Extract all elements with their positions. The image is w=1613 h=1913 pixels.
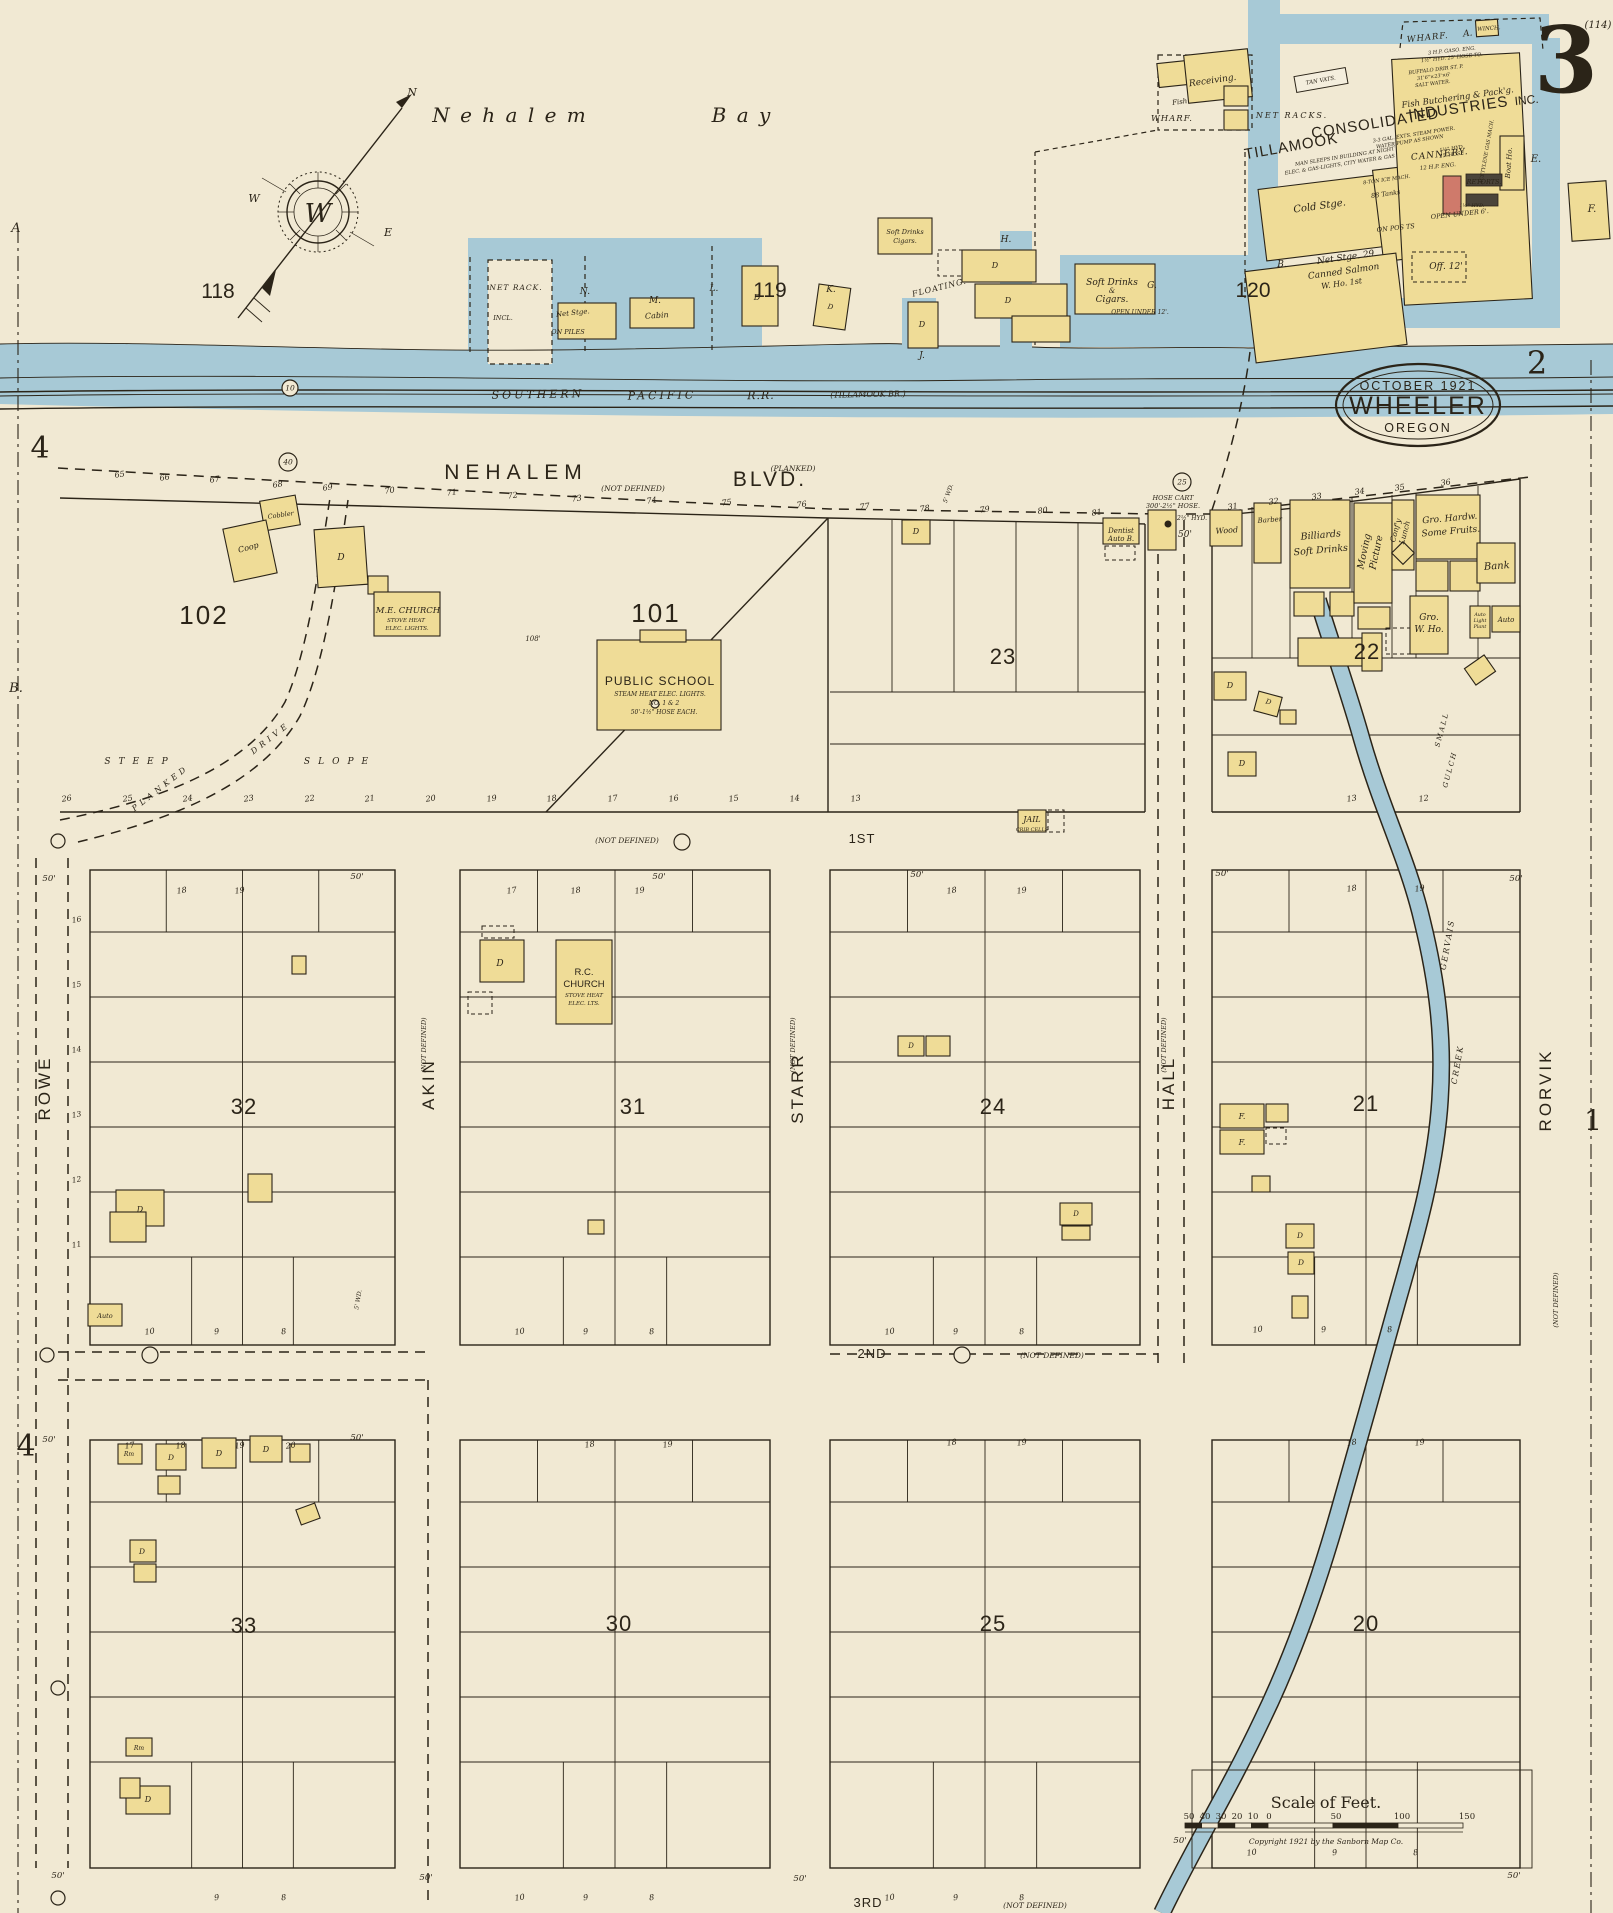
map-label: (PLANKED) (771, 464, 816, 473)
map-label: 20 (284, 1440, 296, 1450)
map-label: 31 (620, 1094, 646, 1119)
building (368, 576, 388, 594)
map-label: CRIB CELLS (1016, 827, 1049, 833)
map-label: 40 (1200, 1812, 1211, 1822)
map-label: W (248, 192, 261, 205)
map-label: 50' (1173, 1836, 1186, 1846)
map-label: OPEN UNDER 12'. (1111, 309, 1169, 316)
map-label: PACIFIC (627, 388, 697, 402)
map-label: R.C. (575, 967, 594, 978)
building (1266, 1104, 1288, 1122)
hose-circle-icon (51, 1681, 65, 1695)
map-label: SOUTHERN (491, 387, 584, 402)
map-label: (NOT DEFINED) (789, 1017, 797, 1073)
building (120, 1778, 140, 1798)
map-label: 76 (796, 499, 807, 509)
map-label: Auto B. (1107, 535, 1134, 543)
map-label: 12 (71, 1174, 82, 1185)
map-label: 10 (884, 1892, 895, 1902)
building (1292, 1296, 1308, 1318)
map-label: 22 (1354, 639, 1380, 664)
building (1252, 1176, 1270, 1192)
map-label: PUBLIC SCHOOL (605, 674, 715, 688)
building (878, 218, 932, 254)
building (1148, 510, 1176, 550)
map-label: 16 (71, 914, 82, 925)
building (1062, 1226, 1090, 1240)
map-label: 18 (175, 1440, 186, 1450)
map-label: 23 (990, 644, 1016, 669)
map-label: D (991, 261, 999, 270)
building (1443, 176, 1461, 214)
map-label: 80 (1037, 505, 1048, 515)
map-label: D (1072, 1210, 1079, 1218)
hose-circle-icon (51, 834, 65, 848)
map-label: 21 (1353, 1091, 1379, 1116)
building (975, 284, 1067, 318)
map-label: H. (1000, 235, 1012, 245)
hose-circle-number: 40 (282, 458, 293, 467)
map-label: 18 (946, 885, 957, 895)
map-label: F. (1238, 1138, 1246, 1147)
map-label: STOVE HEAT (387, 618, 425, 624)
building (1330, 592, 1354, 616)
map-label: STEEP (104, 757, 175, 767)
building (962, 250, 1036, 282)
map-label: 20 (1353, 1611, 1379, 1636)
map-label: 20 (424, 793, 436, 803)
stamp-date: OCTOBER 1921 (1360, 379, 1477, 393)
map-label: 50' (350, 872, 363, 882)
map-label: 120 (1235, 279, 1270, 302)
map-label: 13 (850, 793, 861, 803)
map-label: 15 (728, 793, 739, 803)
hose-circle-icon (142, 1347, 158, 1363)
map-label: 19 (234, 885, 245, 895)
map-label: 65 (114, 469, 125, 479)
map-label: 35 (1394, 482, 1405, 492)
net-rack-wharf (488, 260, 552, 364)
map-label: Bank (1483, 560, 1511, 573)
hose-circle-number: 10 (285, 384, 295, 393)
map-label: SLOPE (304, 757, 376, 767)
map-label: D (912, 527, 920, 536)
map-label: STEAM HEAT ELEC. LIGHTS. (614, 691, 706, 698)
map-label: 10 (514, 1326, 525, 1336)
map-label: F. (1587, 204, 1597, 215)
map-label: Off. 12' (1429, 262, 1462, 272)
map-label: 50' (51, 1871, 64, 1881)
map-label: M.E. CHURCH (375, 606, 441, 616)
map-label: 10 (884, 1326, 895, 1336)
map-label: 18 (570, 885, 581, 895)
map-label: 1 (1584, 1104, 1602, 1137)
map-label: A (10, 221, 20, 236)
map-label: D (262, 1445, 270, 1454)
map-label: 50' (793, 1874, 806, 1884)
map-label: 18 (946, 1437, 957, 1447)
map-label: (NOT DEFINED) (1003, 1901, 1067, 1910)
map-label: (NOT DEFINED) (595, 836, 659, 845)
map-label: WHARF. (1151, 114, 1193, 124)
map-label: 18 (1346, 1437, 1357, 1447)
map-label: W. Ho. (1414, 625, 1444, 635)
map-label: D (495, 959, 503, 969)
map-label: 50' (419, 1873, 432, 1883)
map-label: 23 (242, 793, 254, 803)
map-label: 50' (42, 874, 55, 884)
map-label: 70 (384, 485, 395, 495)
map-label: Auto (1497, 616, 1515, 624)
map-label: 25 (980, 1611, 1006, 1636)
map-label: 50' (1507, 1871, 1520, 1881)
map-label: Cigars. (893, 237, 917, 245)
map-label: Cigars. (1096, 295, 1129, 305)
map-label: 75 (721, 497, 732, 507)
building (248, 1174, 272, 1202)
map-label: 13 (71, 1109, 82, 1120)
map-label: D (907, 1042, 914, 1050)
map-label: 13 (1346, 793, 1357, 803)
map-label: Dentist (1107, 527, 1134, 535)
map-label: L. (709, 284, 719, 294)
map-label: 3RD (853, 1895, 882, 1910)
hose-circle-icon (40, 1348, 54, 1362)
map-label: 10 (1248, 1812, 1259, 1822)
map-label: B. (8, 681, 23, 696)
map-label: N. (579, 287, 590, 297)
map-label: G. (1147, 281, 1157, 291)
map-label: D (1297, 1258, 1304, 1267)
map-label: 10 (144, 1326, 155, 1336)
map-label: 33 (1311, 491, 1322, 501)
building (110, 1212, 146, 1242)
map-label: 19 (1016, 1437, 1027, 1447)
map-label: 12 (1418, 793, 1429, 803)
map-label: 15 (71, 979, 82, 990)
map-label: 73 (571, 493, 582, 503)
map-label: 72 (507, 490, 518, 500)
map-label: 1ST (849, 831, 876, 846)
map-label: ELEC. LIGHTS. (384, 626, 428, 632)
map-label: 11 (71, 1239, 82, 1250)
map-label: 50' (42, 1435, 55, 1445)
map-label: STOVE HEAT (565, 993, 603, 999)
map-label: D (167, 1453, 174, 1462)
sanborn-map-sheet: 104025N e h a l e mB a yNWEW118119120NET… (0, 0, 1613, 1913)
building (1224, 86, 1248, 106)
map-label: Rm (123, 1451, 135, 1458)
map-label: J. (917, 351, 925, 361)
map-label: 10 (1252, 1324, 1263, 1334)
map-label: 21 (363, 793, 375, 803)
map-label: 101 (631, 598, 680, 628)
map-label: 66 (159, 472, 170, 482)
map-label: D (1296, 1231, 1303, 1240)
map-label: 79 (979, 504, 990, 514)
map-label: (NOT DEFINED) (1160, 1017, 1168, 1073)
building (1298, 638, 1362, 666)
map-label: 50'-1½" HOSE EACH. (631, 709, 698, 716)
sheet-annotation: (114) (1585, 20, 1612, 31)
map-label: D (753, 293, 761, 302)
map-label: 19 (1414, 1437, 1425, 1447)
map-label: E. (1530, 154, 1541, 165)
map-label: B a y (711, 103, 773, 127)
map-label: 0 (1266, 1812, 1271, 1822)
map-label: A. (1462, 29, 1473, 40)
map-label: 108' (525, 635, 540, 643)
map-label: 19 (662, 1439, 673, 1449)
map-label: Light (1473, 618, 1487, 624)
map-label: 2½" HYD. (1176, 515, 1207, 522)
map-label: & (1109, 287, 1115, 295)
map-label: Soft Drinks (886, 228, 924, 236)
map-label: 20 (1232, 1812, 1243, 1822)
map-label: E (383, 226, 392, 239)
stamp-city: WHEELER (1349, 392, 1487, 420)
building (1358, 607, 1390, 629)
map-label: 36 (1440, 477, 1451, 487)
map-label: RORVIK (1536, 1049, 1555, 1132)
map-label: NO. 1 & 2 (648, 700, 680, 707)
map-label: NET RACKS. (1255, 111, 1328, 120)
map-label: K. (825, 285, 836, 295)
map-label: 30 (606, 1611, 632, 1636)
map-label: D (215, 1449, 223, 1458)
map-label: 30 (1216, 1812, 1227, 1822)
map-label: 16 (668, 793, 679, 803)
map-label: 18 (176, 885, 187, 895)
map-label: 68 (272, 479, 283, 489)
map-label: 50' (910, 870, 923, 880)
map-label: D (138, 1547, 145, 1556)
map-label: 78 (919, 503, 930, 513)
map-label: 50' (1509, 874, 1522, 884)
map-label: 14 (71, 1044, 82, 1055)
map-label: 34 (1354, 486, 1365, 496)
map-label: 31 (1227, 501, 1238, 511)
map-label: F. (1238, 1112, 1246, 1121)
map-label: CHURCH (563, 979, 604, 990)
map-label: 50 (1184, 1812, 1195, 1822)
map-label: 150 (1459, 1812, 1475, 1822)
map-label: Wood (1215, 525, 1238, 536)
map-label: 74 (646, 495, 657, 505)
map-label: W (305, 199, 334, 229)
map-label: Auto (96, 1312, 112, 1320)
map-label: 50' (1178, 530, 1192, 540)
map-label: NEHALEM (444, 461, 588, 484)
hose-circle-icon (954, 1347, 970, 1363)
map-label: HOSE CART (1151, 494, 1194, 502)
map-label: 118 (201, 280, 234, 303)
map-label: Rm (133, 1745, 145, 1752)
map-label: D (918, 320, 926, 329)
building (1258, 175, 1384, 261)
map-label: 300'-2½" HOSE. (1146, 502, 1200, 510)
map-label: ROWE (35, 1056, 54, 1121)
map-label: D (136, 1205, 144, 1214)
map-label: D (1238, 759, 1246, 768)
map-label: 19 (1016, 885, 1027, 895)
building (588, 1220, 604, 1234)
map-label: 50' (350, 1433, 363, 1443)
map-label: R.R. (746, 389, 775, 402)
map-label: INCL. (492, 314, 513, 322)
building (134, 1564, 156, 1582)
map-label: 71 (446, 487, 457, 497)
map-label: D (336, 553, 344, 563)
building (1254, 503, 1281, 563)
map-label: 69 (322, 482, 333, 492)
map-label: 50 (1331, 1812, 1342, 1822)
map-label: 24 (980, 1094, 1006, 1119)
map-label: 32 (231, 1094, 257, 1119)
map-label: (NOT DEFINED) (601, 484, 665, 493)
map-label: N e h a l e m (431, 103, 587, 127)
map-label: NET RACK. (488, 283, 542, 292)
map-label: B. (1276, 260, 1287, 270)
hose-circle-icon (674, 834, 690, 850)
map-label: 100 (1394, 1812, 1410, 1822)
map-label: 19 (634, 885, 645, 895)
scale-copyright: Copyright 1921 by the Sanborn Map Co. (1249, 1837, 1403, 1846)
map-canvas: 104025N e h a l e mB a yNWEW118119120NET… (0, 0, 1613, 1913)
map-label: Cabin (645, 310, 669, 321)
building (1416, 561, 1448, 591)
map-label: JAIL (1021, 815, 1040, 824)
building (158, 1476, 180, 1494)
map-label: 32 (1268, 496, 1279, 506)
map-label: 50' (652, 872, 665, 882)
map-label: 18 (1346, 883, 1357, 893)
map-label: 19 (1414, 883, 1425, 893)
map-label: (TILLAMOOK BR.) (830, 389, 906, 399)
building (926, 1036, 950, 1056)
map-label: 4 (16, 1429, 35, 1464)
map-label: ELEC. LTS. (567, 1001, 600, 1007)
map-label: D (1226, 681, 1234, 690)
hose-circle-icon (51, 1891, 65, 1905)
map-label: 2ND (857, 1346, 886, 1361)
map-label: 24 (181, 793, 193, 803)
map-label: ON PILES (551, 328, 585, 336)
map-label: 50' (1215, 869, 1228, 879)
map-label: 4 (30, 431, 49, 466)
map-label: 81 (1091, 507, 1102, 517)
map-label: 19 (234, 1440, 245, 1450)
map-label: 18 (546, 793, 557, 803)
map-label: (NOT DEFINED) (1552, 1272, 1560, 1328)
map-label: D (1004, 296, 1012, 305)
map-label: Gro. (1419, 613, 1439, 623)
scale-title: Scale of Feet. (1271, 1793, 1381, 1812)
building (640, 630, 686, 642)
map-label: 2 (1527, 344, 1547, 382)
building (1224, 110, 1248, 130)
building (1012, 316, 1070, 342)
map-label: D (144, 1795, 152, 1804)
building (1450, 561, 1480, 591)
hose-circle-number: 25 (1176, 478, 1187, 487)
building (1280, 710, 1296, 724)
map-label: 14 (789, 793, 800, 803)
building (292, 956, 306, 974)
map-label: N (406, 86, 417, 99)
map-label: (NOT DEFINED) (1020, 1351, 1084, 1360)
map-label: M. (648, 296, 661, 306)
map-label: 22 (303, 793, 315, 803)
map-label: 10 (1246, 1847, 1257, 1857)
stamp-state: OREGON (1384, 421, 1452, 435)
map-label: 26 (60, 793, 72, 803)
map-label: (NOT DEFINED) (420, 1017, 428, 1073)
map-label: Plant (1473, 624, 1487, 630)
building (1294, 592, 1324, 616)
map-label: 102 (179, 600, 228, 630)
map-label: 19 (486, 793, 497, 803)
map-label: 25 (121, 793, 133, 803)
hydrant-dot-icon (1165, 521, 1172, 528)
map-label: Auto (1473, 612, 1485, 618)
map-label: 10 (514, 1892, 525, 1902)
map-label: 33 (231, 1613, 257, 1638)
map-label: 18 (584, 1439, 595, 1449)
